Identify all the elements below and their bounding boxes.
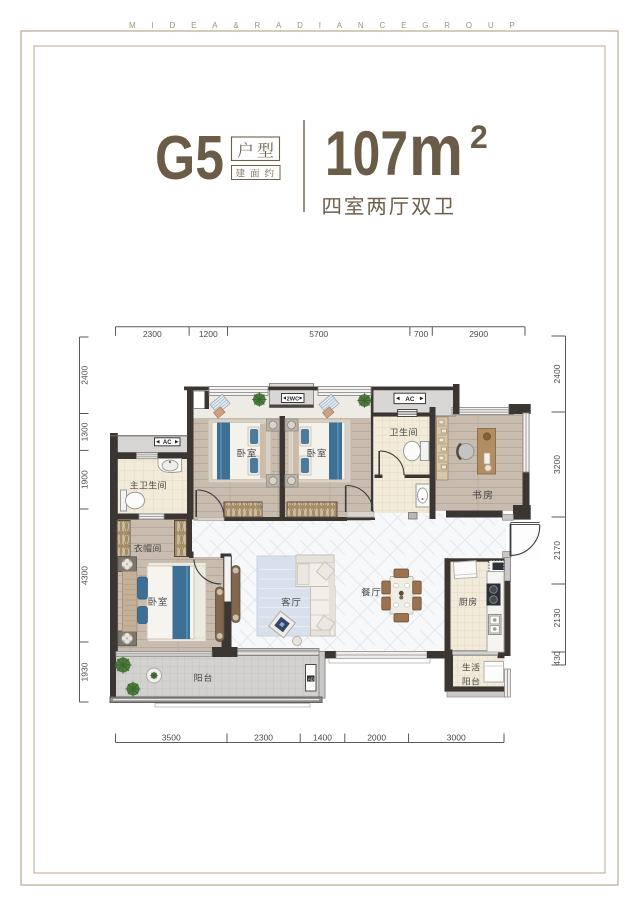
svg-text:AC: AC [163,440,172,446]
svg-text:430: 430 [552,651,562,665]
svg-text:AD: AD [308,677,314,682]
svg-text:5700: 5700 [309,329,328,339]
svg-text:2000: 2000 [367,732,386,742]
svg-text:MIDEA&RADIANCEGROUP: MIDEA&RADIANCEGROUP [129,21,531,30]
svg-text:107: 107 [325,119,408,189]
svg-text:m: m [409,111,463,191]
svg-text:700: 700 [414,329,428,339]
svg-text:1930: 1930 [80,662,90,681]
svg-text:4300: 4300 [80,566,90,585]
svg-text:2400: 2400 [552,364,562,383]
svg-text:2170: 2170 [552,541,562,560]
svg-text:3200: 3200 [552,455,562,474]
svg-text:2400: 2400 [80,366,90,385]
svg-text:AC: AC [405,396,415,403]
svg-text:1400: 1400 [313,732,332,742]
svg-text:1300: 1300 [80,422,90,441]
svg-text:1900: 1900 [80,470,90,489]
svg-text:2: 2 [470,119,488,155]
svg-text:3000: 3000 [447,732,466,742]
svg-text:1200: 1200 [199,329,218,339]
svg-text:G5: G5 [155,124,224,193]
svg-text:2WC: 2WC [287,396,299,402]
svg-text:3500: 3500 [162,732,181,742]
svg-text:2900: 2900 [469,329,488,339]
svg-text:2300: 2300 [143,329,162,339]
svg-text:2130: 2130 [552,608,562,627]
svg-text:2300: 2300 [254,732,273,742]
